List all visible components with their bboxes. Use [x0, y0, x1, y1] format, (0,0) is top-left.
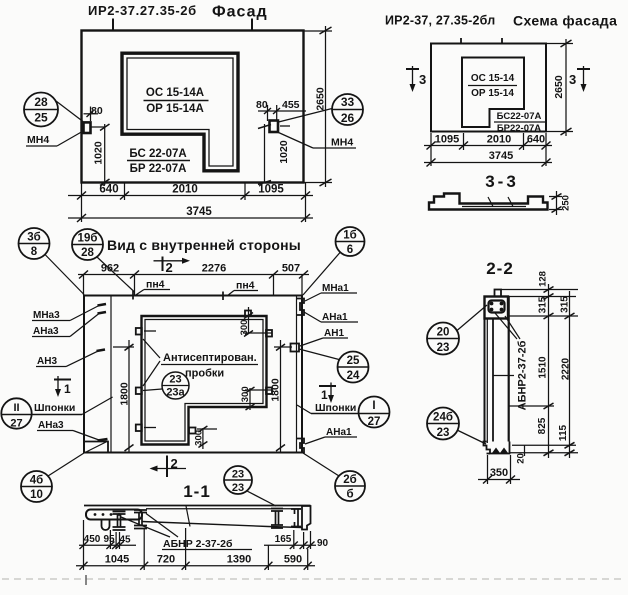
svg-text:1800: 1800 [270, 378, 282, 402]
svg-text:пробки: пробки [185, 368, 224, 380]
svg-text:2: 2 [171, 456, 178, 471]
svg-text:2650: 2650 [315, 87, 327, 111]
svg-text:АНа3: АНа3 [38, 420, 64, 431]
svg-text:АБНР 2-37-2б: АБНР 2-37-2б [163, 538, 233, 550]
svg-text:2б: 2б [343, 474, 357, 486]
svg-text:1020: 1020 [278, 140, 290, 164]
svg-text:БР22-07А: БР22-07А [497, 123, 541, 134]
svg-text:Шпонки: Шпонки [34, 402, 75, 414]
svg-text:315: 315 [538, 296, 549, 313]
svg-text:128: 128 [538, 271, 549, 287]
svg-text:3: 3 [419, 72, 426, 87]
svg-text:3б: 3б [27, 232, 41, 244]
svg-text:1045: 1045 [105, 554, 129, 566]
svg-text:25: 25 [347, 355, 360, 367]
svg-text:20: 20 [437, 327, 450, 339]
svg-text:115: 115 [558, 424, 569, 441]
svg-text:90: 90 [317, 538, 329, 549]
svg-text:2220: 2220 [561, 357, 572, 380]
svg-text:3: 3 [569, 72, 576, 87]
svg-text:23: 23 [169, 374, 181, 386]
svg-text:1095: 1095 [435, 134, 459, 146]
svg-text:1095: 1095 [258, 184, 284, 196]
svg-text:2-2: 2-2 [486, 259, 514, 278]
svg-text:Схема фасада: Схема фасада [513, 13, 617, 29]
svg-text:2276: 2276 [202, 263, 226, 275]
svg-text:1-1: 1-1 [183, 482, 211, 501]
svg-text:Антисептирован.: Антисептирован. [163, 352, 257, 364]
svg-text:300: 300 [194, 430, 205, 446]
svg-text:590: 590 [284, 554, 302, 566]
svg-text:640: 640 [527, 134, 545, 146]
svg-text:26: 26 [341, 111, 355, 125]
svg-text:315: 315 [560, 296, 571, 313]
svg-text:19б: 19б [78, 233, 98, 245]
svg-text:Шпонки: Шпонки [315, 402, 356, 414]
svg-text:АНа3: АНа3 [33, 326, 59, 337]
svg-text:ОС 15-14А: ОС 15-14А [146, 87, 204, 99]
svg-text:3745: 3745 [489, 150, 513, 162]
svg-text:АН3: АН3 [37, 356, 57, 367]
svg-text:24б: 24б [433, 412, 453, 424]
svg-text:8: 8 [31, 246, 38, 258]
svg-text:1020: 1020 [93, 141, 105, 165]
svg-text:МНа1: МНа1 [322, 283, 349, 294]
svg-text:825: 825 [537, 417, 548, 434]
svg-text:БС 22-07А: БС 22-07А [129, 148, 186, 160]
svg-text:300: 300 [239, 320, 250, 336]
svg-text:23: 23 [232, 482, 244, 494]
svg-text:250: 250 [561, 195, 572, 211]
svg-text:23: 23 [437, 342, 450, 354]
svg-text:б: б [346, 489, 353, 501]
svg-text:1: 1 [64, 382, 71, 396]
svg-text:ОР 15-14: ОР 15-14 [471, 88, 514, 99]
svg-text:165: 165 [275, 534, 292, 545]
svg-text:24: 24 [347, 370, 360, 382]
svg-text:2: 2 [166, 260, 173, 275]
svg-text:23а: 23а [166, 387, 185, 399]
svg-text:3745: 3745 [186, 206, 212, 218]
svg-text:27: 27 [10, 418, 22, 430]
svg-text:20: 20 [516, 453, 527, 464]
svg-text:Фасад: Фасад [212, 4, 268, 21]
svg-text:1510: 1510 [538, 356, 549, 379]
svg-text:507: 507 [282, 263, 300, 275]
svg-text:4б: 4б [30, 475, 44, 487]
svg-text:10: 10 [30, 489, 43, 501]
svg-text:ИР2-37, 27.35-2бл: ИР2-37, 27.35-2бл [385, 14, 495, 28]
svg-text:1800: 1800 [119, 382, 131, 406]
svg-text:II: II [13, 402, 19, 414]
svg-text:ИР2-37.27.35-2б: ИР2-37.27.35-2б [88, 3, 197, 18]
svg-text:МН4: МН4 [331, 137, 353, 149]
svg-text:455: 455 [282, 99, 300, 111]
svg-text:450: 450 [84, 534, 101, 545]
svg-text:пн4: пн4 [236, 280, 255, 292]
svg-text:300: 300 [240, 386, 251, 402]
svg-text:1390: 1390 [227, 554, 251, 566]
svg-text:23: 23 [232, 469, 244, 481]
svg-text:МН4: МН4 [27, 134, 49, 146]
svg-text:АБНР2-37-2б: АБНР2-37-2б [517, 340, 529, 410]
svg-text:33: 33 [341, 95, 355, 109]
svg-text:28: 28 [34, 95, 48, 109]
svg-text:2010: 2010 [487, 134, 511, 146]
svg-text:ОС 15-14: ОС 15-14 [471, 73, 515, 84]
svg-text:МНа3: МНа3 [33, 310, 60, 321]
svg-text:640: 640 [99, 184, 118, 196]
svg-text:ОР 15-14А: ОР 15-14А [146, 103, 204, 115]
svg-text:23: 23 [437, 427, 450, 439]
svg-text:720: 720 [157, 554, 175, 566]
svg-text:2650: 2650 [553, 75, 565, 99]
svg-text:27: 27 [368, 416, 381, 428]
svg-text:БР 22-07А: БР 22-07А [130, 163, 187, 175]
svg-text:25: 25 [34, 111, 48, 125]
svg-text:АНа1: АНа1 [322, 312, 348, 323]
svg-text:3-3: 3-3 [485, 172, 519, 191]
svg-text:АНа1: АНа1 [326, 427, 352, 438]
svg-text:2010: 2010 [172, 184, 198, 196]
svg-text:I: I [372, 400, 375, 412]
svg-text:45: 45 [119, 535, 131, 546]
svg-text:1б: 1б [343, 230, 357, 242]
svg-text:6: 6 [347, 244, 353, 256]
svg-text:1: 1 [321, 388, 328, 402]
svg-text:350: 350 [490, 467, 508, 479]
svg-text:пн4: пн4 [146, 279, 165, 291]
svg-text:80: 80 [256, 99, 268, 111]
svg-text:АН1: АН1 [324, 328, 344, 339]
svg-text:28: 28 [81, 247, 94, 259]
svg-text:БС22-07А: БС22-07А [497, 111, 542, 122]
svg-text:95: 95 [103, 534, 115, 545]
svg-text:Вид с внутренней стороны: Вид с внутренней стороны [107, 237, 301, 253]
